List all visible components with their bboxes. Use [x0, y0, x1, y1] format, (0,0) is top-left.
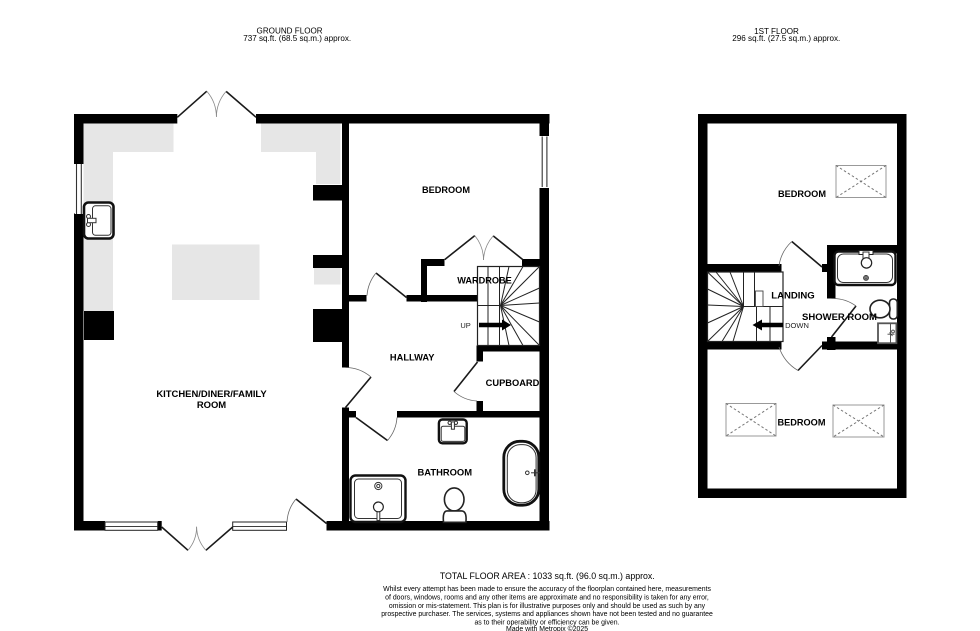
svg-text:737 sq.ft. (68.5 sq.m.) approx: 737 sq.ft. (68.5 sq.m.) approx. — [243, 34, 351, 43]
svg-text:Whilst every attempt has been: Whilst every attempt has been made to en… — [383, 586, 711, 593]
svg-text:SHOWER ROOM: SHOWER ROOM — [802, 312, 877, 323]
svg-text:LANDING: LANDING — [771, 291, 815, 302]
svg-text:BEDROOM: BEDROOM — [422, 185, 470, 195]
svg-text:TOTAL FLOOR AREA : 1033 sq.ft.: TOTAL FLOOR AREA : 1033 sq.ft. (96.0 sq.… — [440, 571, 655, 581]
svg-text:CUPBOARD: CUPBOARD — [486, 378, 540, 388]
svg-text:HALLWAY: HALLWAY — [390, 353, 435, 363]
svg-text:of doors, windows, rooms and a: of doors, windows, rooms and any other i… — [385, 594, 709, 601]
svg-text:KITCHEN/DINER/FAMILY: KITCHEN/DINER/FAMILY — [156, 389, 267, 400]
svg-text:BEDROOM: BEDROOM — [778, 417, 826, 427]
svg-text:BATHROOM: BATHROOM — [418, 467, 473, 478]
svg-text:UP: UP — [460, 321, 470, 330]
svg-text:omission or mis-statement. Thi: omission or mis-statement. This plan is … — [389, 603, 706, 610]
svg-text:Made with Metropix ©2025: Made with Metropix ©2025 — [506, 625, 588, 631]
svg-text:prospective purchaser. The ser: prospective purchaser. The services, sys… — [381, 611, 713, 618]
svg-text:296 sq.ft. (27.5 sq.m.) approx: 296 sq.ft. (27.5 sq.m.) approx. — [732, 34, 840, 43]
svg-text:BEDROOM: BEDROOM — [778, 189, 826, 199]
svg-text:ROOM: ROOM — [197, 400, 226, 411]
svg-text:WARDROBE: WARDROBE — [457, 276, 512, 286]
